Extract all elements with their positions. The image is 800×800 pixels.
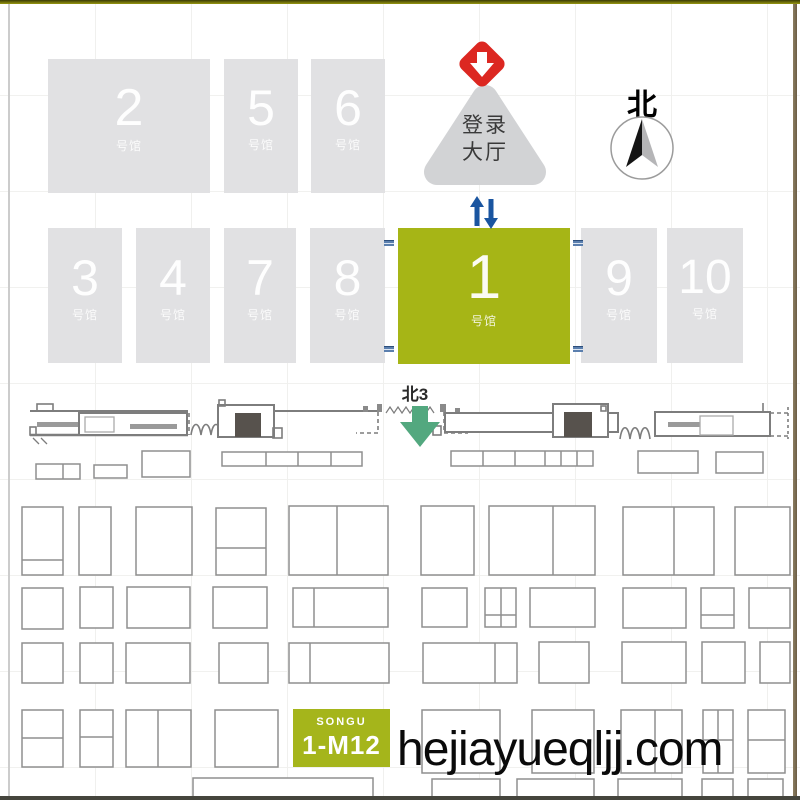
booth-outline [451,451,593,466]
booth-outline [293,588,388,627]
booth-outline [760,642,790,683]
hall-10[interactable]: 10号馆 [667,228,743,363]
compass-icon [608,115,676,183]
door-marker-icon [384,240,394,246]
hall-number: 4 [159,253,187,303]
hall-sub-label: 号馆 [692,305,718,322]
booth-outline [638,451,698,473]
lobby-label-line1: 登录 [462,114,508,137]
booth-outline [126,643,190,683]
door-marker-icon [573,240,583,246]
frame-border-top [0,0,800,4]
hall-4[interactable]: 4号馆 [136,228,210,363]
hall-sub-label: 号馆 [471,312,497,329]
hall-number: 3 [71,253,99,303]
lobby-label-line2: 大厅 [462,141,508,164]
booth-outline [80,710,113,767]
booth-outline [80,587,113,628]
booth-outline [142,451,190,477]
booth-outline [489,506,595,575]
booth-outline [530,588,595,627]
booth-outline [622,642,686,683]
booth-outline [127,587,190,628]
booth-outline [701,588,734,628]
frame-border-left [8,4,10,797]
hall-number: 7 [246,253,274,303]
booth-outline [702,642,745,683]
hall-2[interactable]: 2号馆 [48,59,210,193]
booth-outline [222,452,362,466]
booth-outline [423,643,517,683]
hall-6[interactable]: 6号馆 [311,59,385,193]
hall-number: 1 [467,247,501,309]
booth-outline [22,507,63,575]
gate-arrow-icon [400,406,440,448]
booth-1-M12[interactable]: SONGU 1-M12 [293,709,390,767]
hall-number: 6 [334,83,362,133]
booth-outline [422,588,467,627]
booth-outline [716,452,763,473]
booth-outline [623,588,686,628]
booth-brand-logo: SONGU [316,717,366,728]
frame-border-right [793,4,797,797]
booth-outline [289,643,389,683]
booth-outline [219,643,268,683]
booth-outline [126,710,191,767]
hall-sub-label: 号馆 [72,306,98,323]
hall-7[interactable]: 7号馆 [224,228,296,363]
booth-outline [539,642,589,683]
booth-outline [748,710,785,773]
hall-1[interactable]: 1号馆 [398,228,570,364]
booth-outline [289,506,388,575]
booth-outline [213,587,267,628]
door-marker-icon [573,346,583,352]
hall-number: 9 [605,253,633,303]
booth-outline [749,588,790,628]
hall-3[interactable]: 3号馆 [48,228,122,363]
booth-outline [22,588,63,629]
hall-sub-label: 号馆 [334,306,360,323]
booth-outline [623,507,714,575]
entrance-arrow-icon [452,34,512,94]
gate-label: 北3 [380,380,450,405]
booth-outline [485,588,516,627]
hall-number: 8 [334,253,362,303]
hall-number: 2 [115,82,144,134]
watermark-text: hejiayueqljj.com [397,722,723,777]
booth-outline [22,643,63,683]
booth-outline [193,778,373,797]
booth-outline [136,507,192,575]
booth-outline [421,506,474,575]
hall-9[interactable]: 9号馆 [581,228,657,363]
hall-sub-label: 号馆 [160,306,186,323]
two-way-arrows-icon [464,194,504,232]
hall-sub-label: 号馆 [606,306,632,323]
hall-sub-label: 号馆 [335,136,361,153]
booth-outline [216,508,266,575]
booth-outline [22,710,63,767]
frame-border-bottom [0,796,800,800]
booth-outline [80,643,113,683]
booth-outline [94,465,127,478]
hall-5[interactable]: 5号馆 [224,59,298,193]
booth-code: 1-M12 [302,731,381,760]
door-marker-icon [384,346,394,352]
booth-outline [735,507,790,575]
booth-outline [215,710,278,767]
hall-number: 10 [678,254,731,302]
hall-sub-label: 号馆 [248,136,274,153]
exhibition-map: 2号馆5号馆6号馆3号馆4号馆7号馆8号馆1号馆9号馆10号馆 登录 大厅 北 … [0,0,800,800]
hall-sub-label: 号馆 [247,306,273,323]
hall-8[interactable]: 8号馆 [310,228,385,363]
hall-number: 5 [247,83,275,133]
booth-outline [36,464,80,479]
lobby-label: 登录 大厅 [425,112,545,166]
booth-outline [79,507,111,575]
hall-sub-label: 号馆 [116,137,142,154]
